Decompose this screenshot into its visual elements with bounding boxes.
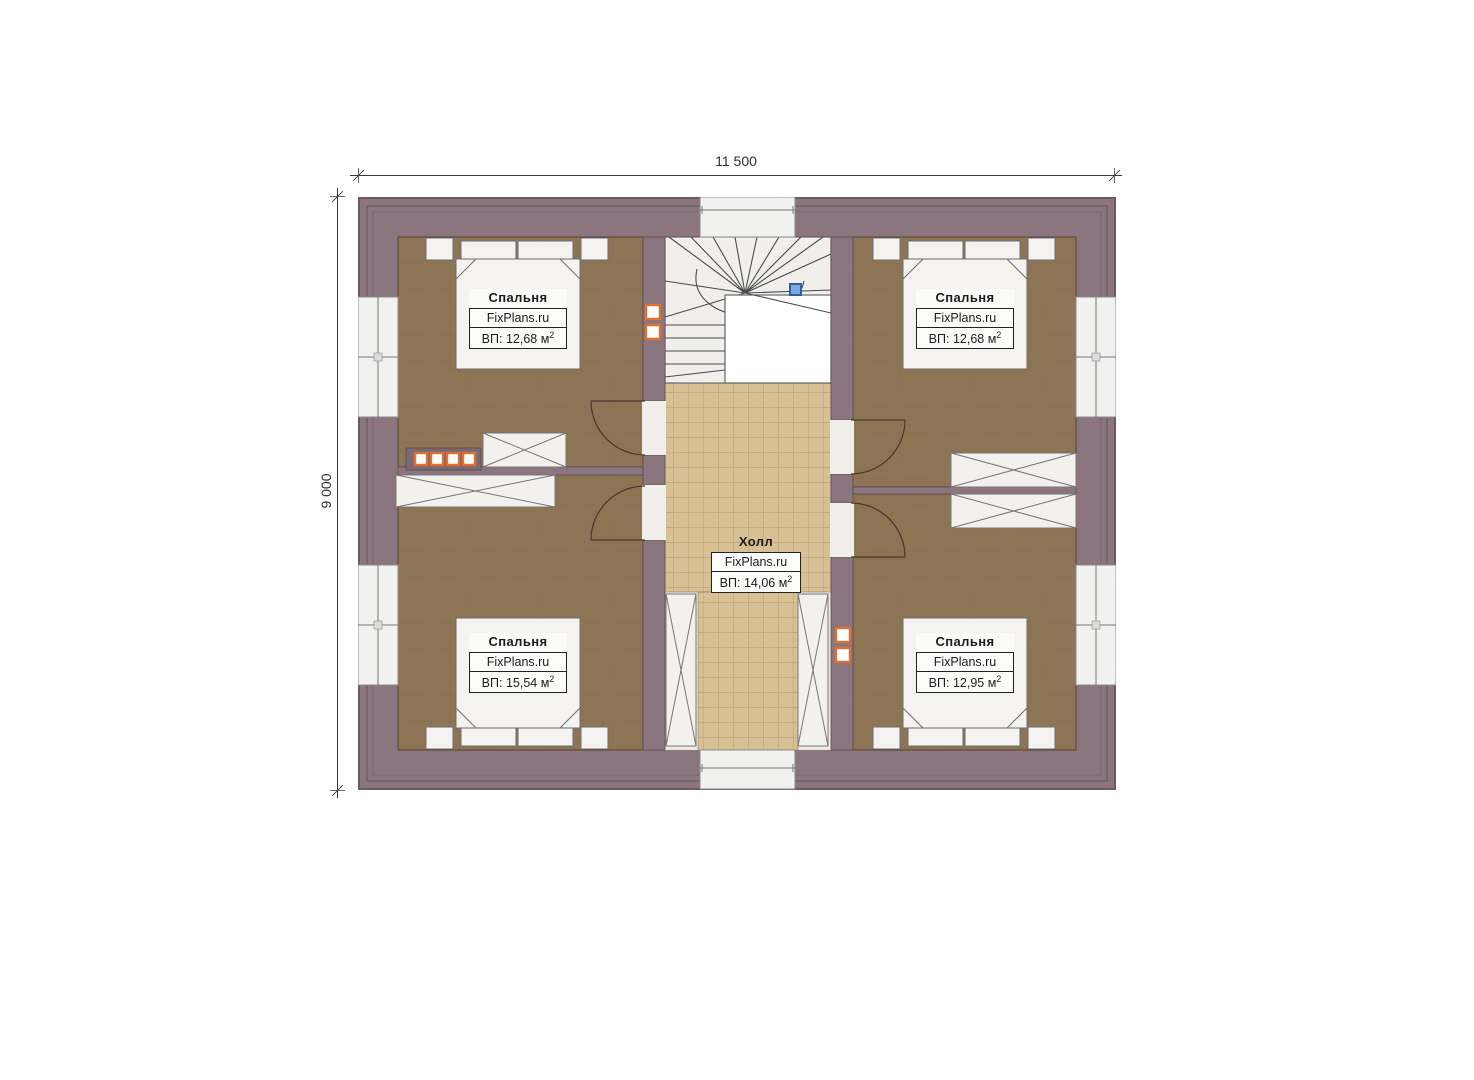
nightstand — [581, 727, 608, 749]
drawer-handle — [431, 453, 443, 465]
drawer-handle — [415, 453, 427, 465]
window-bottom-center — [700, 750, 795, 789]
room-label-hall: Холл FixPlans.ru ВП: 14,06 м2 — [711, 533, 801, 593]
room-area: ВП: 14,06 м2 — [711, 571, 801, 593]
staircase — [665, 237, 831, 383]
room-brand: FixPlans.ru — [469, 652, 567, 672]
nightstand — [581, 238, 608, 260]
hall-closet-left — [666, 594, 696, 746]
dimension-line — [350, 175, 1122, 176]
window-right-bottom — [1076, 565, 1116, 685]
window-left-bottom — [358, 565, 398, 685]
nightstand — [1028, 727, 1055, 749]
hall-closet-right — [798, 594, 828, 746]
dresser — [406, 448, 481, 470]
room-brand: FixPlans.ru — [916, 652, 1014, 672]
floor-plan-drawing — [358, 197, 1116, 790]
wardrobe-bottom-right-room — [951, 494, 1076, 528]
wardrobe-top-left-room — [483, 433, 566, 467]
drawer-handle — [463, 453, 475, 465]
room-area: ВП: 12,95 м2 — [916, 671, 1014, 693]
room-area: ВП: 12,68 м2 — [469, 327, 567, 349]
partition-right — [853, 487, 1076, 494]
radiator-stair-west — [646, 325, 660, 339]
room-label-bedroom-top-right: Спальня FixPlans.ru ВП: 12,68 м2 — [916, 289, 1014, 349]
pillow — [518, 241, 573, 259]
room-area: ВП: 15,54 м2 — [469, 671, 567, 693]
nightstand — [1028, 238, 1055, 260]
room-name: Холл — [711, 533, 801, 552]
stair-marker — [790, 284, 801, 295]
room-brand: FixPlans.ru — [711, 552, 801, 572]
room-brand: FixPlans.ru — [916, 308, 1014, 328]
wardrobe-top-right-room — [951, 453, 1076, 487]
radiator-hall-east — [836, 648, 850, 662]
pillow — [461, 728, 516, 746]
dimension-line — [337, 188, 338, 798]
nightstand — [426, 727, 453, 749]
dimension-width-label: 11 500 — [358, 153, 1114, 169]
room-name: Спальня — [916, 289, 1014, 308]
room-brand: FixPlans.ru — [469, 308, 567, 328]
floor-plan: Спальня FixPlans.ru ВП: 12,68 м2 Спальня… — [358, 197, 1116, 790]
nightstand — [873, 727, 900, 749]
pillow — [965, 241, 1020, 259]
pillow — [518, 728, 573, 746]
window-left-top — [358, 297, 398, 417]
window-right-top — [1076, 297, 1116, 417]
page: { "dimension_labels": { "width": "11 500… — [0, 0, 1474, 1080]
hall-east-wall — [831, 237, 853, 750]
room-name: Спальня — [469, 633, 567, 652]
pillow — [965, 728, 1020, 746]
window-top-center — [700, 197, 795, 237]
pillow — [461, 241, 516, 259]
room-label-bedroom-top-left: Спальня FixPlans.ru ВП: 12,68 м2 — [469, 289, 567, 349]
pillow — [908, 728, 963, 746]
stair-void — [725, 295, 831, 383]
room-label-bedroom-bottom-left: Спальня FixPlans.ru ВП: 15,54 м2 — [469, 633, 567, 693]
room-label-bedroom-bottom-right: Спальня FixPlans.ru ВП: 12,95 м2 — [916, 633, 1014, 693]
nightstand — [873, 238, 900, 260]
nightstand — [426, 238, 453, 260]
pillow — [908, 241, 963, 259]
room-name: Спальня — [916, 633, 1014, 652]
room-area: ВП: 12,68 м2 — [916, 327, 1014, 349]
radiator-hall-east — [836, 628, 850, 642]
wardrobe-bottom-left-room — [396, 475, 555, 507]
dimension-height-label: 9 000 — [318, 461, 334, 521]
drawer-handle — [447, 453, 459, 465]
radiator-stair-west — [646, 305, 660, 319]
room-name: Спальня — [469, 289, 567, 308]
